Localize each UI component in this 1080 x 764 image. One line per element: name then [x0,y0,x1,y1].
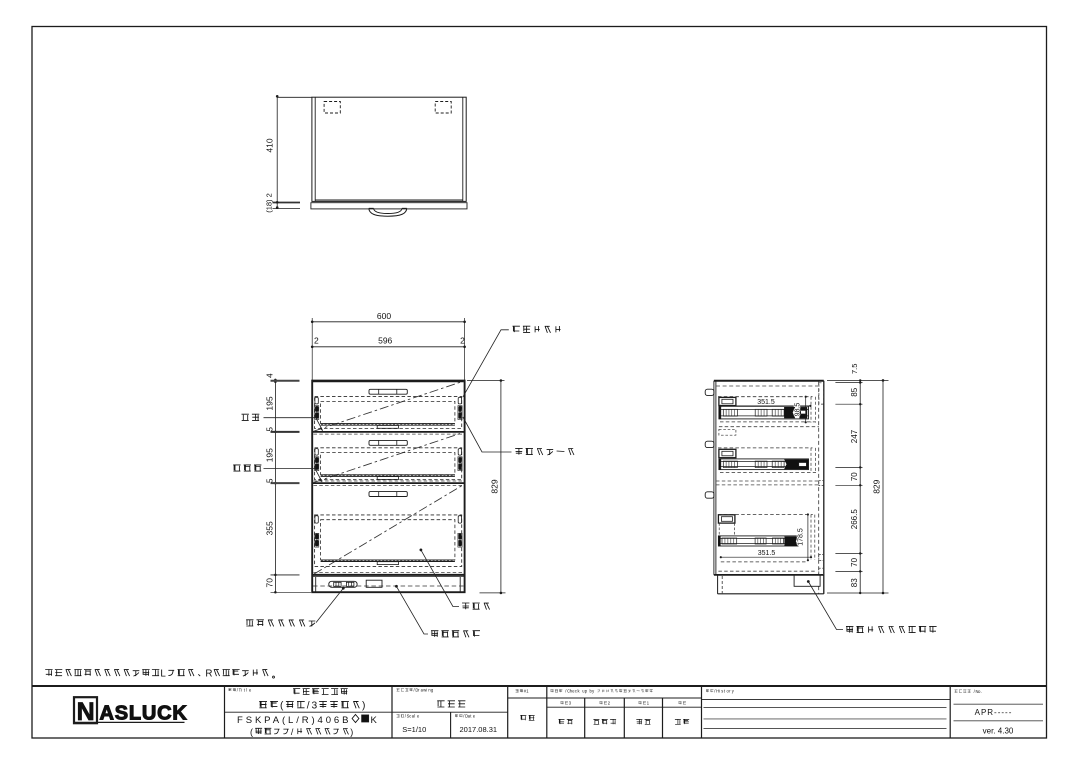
svg-text:2: 2 [314,335,319,345]
svg-text:K: K [371,715,378,726]
svg-text:355: 355 [265,521,275,535]
svg-text:.: . [981,689,982,694]
svg-text:5: 5 [266,427,275,432]
svg-text:ver. 4.30: ver. 4.30 [983,726,1014,735]
svg-text:195: 195 [265,396,275,410]
svg-text:(18) 2: (18) 2 [264,193,273,213]
svg-text:/: / [307,701,310,712]
svg-text:): ) [350,727,353,737]
svg-text:70: 70 [850,557,859,566]
svg-text:FSKPA(L/R)406B: FSKPA(L/R)406B [237,715,351,726]
svg-text:596: 596 [378,335,392,345]
svg-text:i: i [426,688,427,693]
svg-text:5: 5 [266,478,275,483]
svg-text:7.5: 7.5 [850,364,859,374]
svg-text:178.5: 178.5 [798,528,805,546]
svg-text:410: 410 [264,138,274,152]
svg-text:829: 829 [871,479,881,493]
svg-text:85: 85 [850,387,859,396]
svg-text:(: ( [280,701,284,712]
svg-text:70: 70 [265,578,275,588]
svg-text:(: ( [250,727,253,737]
svg-text:l: l [246,688,247,693]
svg-text:APR-----: APR----- [975,708,1013,717]
svg-text:S=1/10: S=1/10 [402,725,426,734]
svg-text:R: R [205,669,212,680]
svg-text:829: 829 [489,479,499,493]
svg-text:i: i [719,689,720,694]
svg-text:l: l [414,714,415,719]
svg-text:351.5: 351.5 [757,399,775,406]
svg-text:195: 195 [265,448,275,462]
svg-text:): ) [362,701,365,712]
svg-text:83: 83 [850,578,859,587]
svg-text:4: 4 [266,373,275,378]
svg-text:i: i [241,688,242,693]
svg-text:2017.08.31: 2017.08.31 [460,725,498,734]
svg-text:ASLUCK: ASLUCK [100,703,188,725]
svg-text:98.5: 98.5 [794,403,801,417]
svg-text:70: 70 [850,472,859,481]
svg-text:600: 600 [377,311,391,321]
svg-text:351.5: 351.5 [758,550,776,557]
svg-text:L: L [160,669,166,680]
svg-text:3: 3 [312,701,318,712]
svg-text:2: 2 [460,335,465,345]
svg-text:247: 247 [850,429,859,443]
svg-text:266.5: 266.5 [850,509,859,530]
